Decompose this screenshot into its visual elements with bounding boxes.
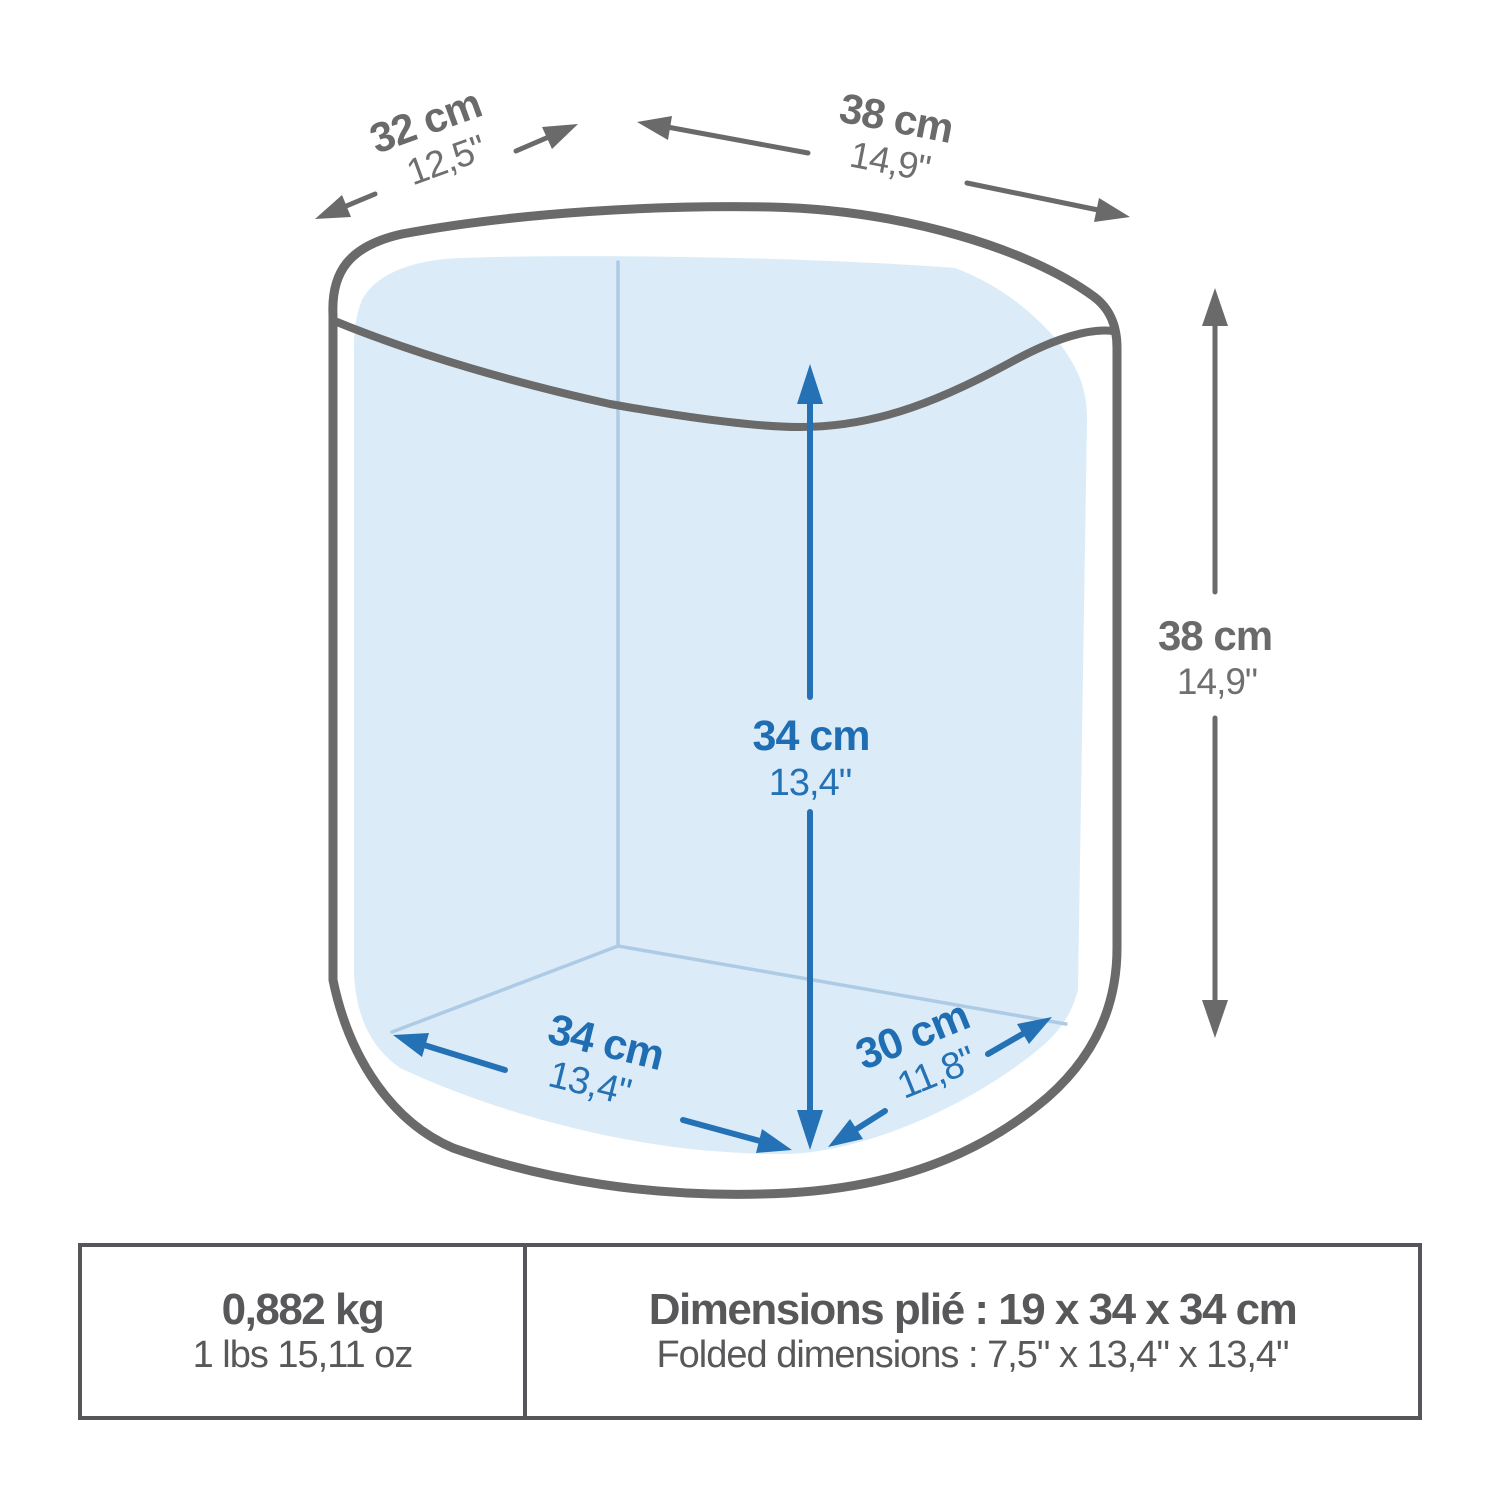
inner-height-metric: 34 cm [753,712,870,760]
top-depth-label: 38 cm 14,9" [828,84,957,192]
weight-value: 0,882 kg [222,1285,384,1334]
spec-cell-folded-dimensions: Dimensions plié : 19 x 34 x 34 cm Folded… [527,1247,1418,1416]
top-depth-arrow-shaft-left [662,126,808,153]
spec-cell-weight: 0,882 kg 1 lbs 15,11 oz [82,1247,527,1416]
top-width-arrowhead-right [542,124,578,149]
height-arrowhead-top [1202,288,1228,326]
top-depth-arrowhead-right [1094,198,1130,222]
container-interior-fill [354,256,1087,1154]
height-metric: 38 cm [1158,612,1272,659]
top-width-label: 32 cm 12,5" [364,79,501,201]
product-dimensions-figure: 32 cm 12,5" 38 cm 14,9" 38 cm 14,9" 34 c… [0,0,1500,1500]
inner-height-imperial: 13,4" [769,762,851,804]
spec-table: 0,882 kg 1 lbs 15,11 oz Dimensions plié … [78,1243,1422,1420]
height-imperial: 14,9" [1177,661,1257,702]
folded-dimensions-imperial-value: Folded dimensions : 7,5" x 13,4" x 13,4" [656,1334,1288,1378]
height-label: 38 cm 14,9" [1158,612,1272,702]
top-depth-arrowhead-left [637,116,672,140]
top-depth-arrow-shaft-right [967,183,1103,211]
height-arrowhead-bottom [1202,1000,1228,1038]
top-width-arrowhead-left [315,195,351,219]
weight-imperial-value: 1 lbs 15,11 oz [193,1334,413,1378]
folded-dimensions-value: Dimensions plié : 19 x 34 x 34 cm [649,1285,1297,1334]
